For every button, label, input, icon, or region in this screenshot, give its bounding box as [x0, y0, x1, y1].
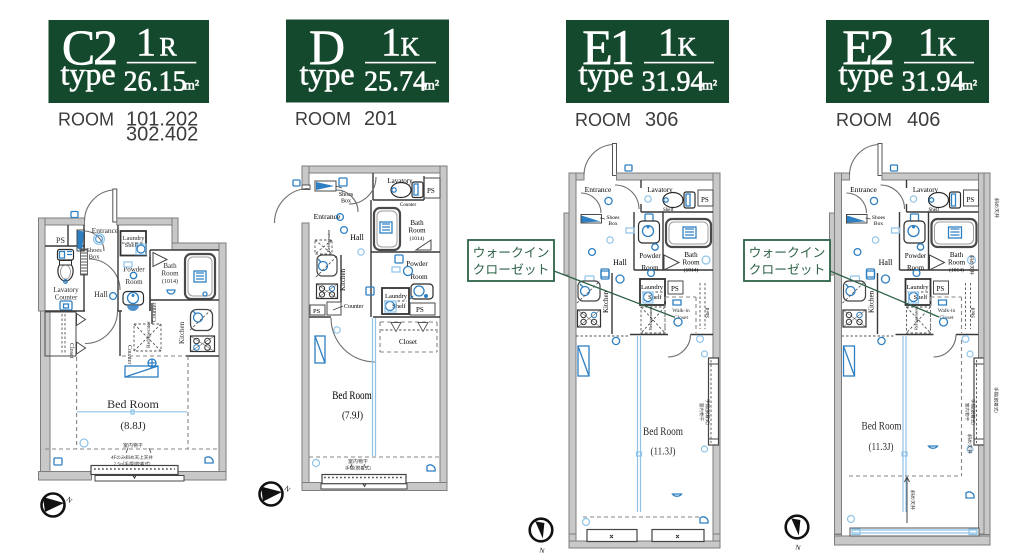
svg-text:Room: Room	[408, 227, 426, 235]
svg-text:(11.3J): (11.3J)	[651, 447, 676, 458]
svg-text:Closet: Closet	[399, 338, 417, 346]
svg-text:Hall: Hall	[94, 290, 109, 299]
svg-text:Box: Box	[608, 221, 617, 227]
svg-text:1: 1	[136, 20, 156, 65]
svg-text:PS: PS	[56, 236, 65, 245]
svg-text:Closet: Closet	[68, 343, 74, 359]
svg-text:306: 306	[645, 109, 678, 131]
svg-text:Shelf: Shelf	[663, 208, 674, 213]
svg-text:Kitchen: Kitchen	[178, 321, 186, 344]
svg-text:type: type	[838, 56, 893, 92]
svg-text:Shelf: Shelf	[648, 294, 663, 301]
svg-text:26.15: 26.15	[124, 67, 187, 98]
svg-text:PS: PS	[671, 285, 679, 293]
svg-text:Entrance: Entrance	[92, 226, 119, 235]
svg-text:Refrigerator: Refrigerator	[145, 321, 152, 348]
svg-text:Counter: Counter	[152, 303, 158, 322]
svg-text:Refrigerator: Refrigerator	[326, 230, 331, 252]
svg-text:Laundry: Laundry	[122, 235, 145, 242]
svg-text:(1014): (1014)	[162, 278, 178, 285]
svg-text:PS: PS	[427, 187, 435, 195]
svg-text:Bed Room: Bed Room	[643, 426, 683, 438]
svg-text:Counter: Counter	[126, 345, 132, 364]
svg-text:m²: m²	[702, 79, 717, 94]
svg-text:PS: PS	[313, 308, 321, 315]
svg-text:PS: PS	[701, 196, 709, 204]
svg-text:31.94: 31.94	[642, 67, 705, 98]
svg-text:m²: m²	[424, 79, 439, 94]
svg-text:Bed Room: Bed Room	[332, 390, 372, 402]
svg-text:(7.9J): (7.9J)	[342, 411, 363, 422]
svg-text:(1014): (1014)	[684, 267, 699, 274]
svg-text:Counter: Counter	[400, 203, 416, 208]
svg-text:(11.3J): (11.3J)	[869, 442, 894, 453]
svg-text:PS: PS	[416, 306, 424, 314]
svg-text:Room: Room	[682, 259, 700, 267]
svg-text:Shelf: Shelf	[706, 307, 711, 318]
svg-text:31.94: 31.94	[902, 67, 965, 98]
svg-text:K: K	[678, 33, 697, 62]
svg-text:Kitchen: Kitchen	[602, 290, 610, 313]
svg-text:302.402: 302.402	[126, 124, 198, 146]
svg-text:(1014): (1014)	[410, 235, 425, 242]
svg-text:type: type	[299, 56, 354, 92]
svg-text:m²: m²	[962, 79, 977, 94]
svg-text:Room: Room	[410, 273, 428, 281]
svg-text:Kitchen: Kitchen	[339, 268, 347, 291]
svg-text:Laundry: Laundry	[385, 293, 408, 300]
svg-text:Refrigerator: Refrigerator	[648, 308, 653, 330]
svg-text:ROOM: ROOM	[295, 109, 351, 129]
svg-text:Hall: Hall	[613, 258, 628, 267]
svg-text:K: K	[401, 33, 420, 62]
svg-text:201: 201	[364, 108, 397, 130]
svg-text:(8.8J): (8.8J)	[120, 420, 146, 432]
svg-text:K: K	[938, 33, 957, 62]
svg-text:25.74: 25.74	[364, 67, 427, 98]
svg-text:type: type	[60, 56, 115, 92]
svg-text:ROOM: ROOM	[836, 110, 892, 130]
svg-text:1: 1	[658, 20, 678, 65]
svg-text:R: R	[159, 33, 177, 62]
svg-text:Powder: Powder	[639, 252, 661, 260]
svg-text:Walk-in: Walk-in	[672, 308, 690, 314]
svg-text:type: type	[578, 56, 633, 92]
svg-text:Room: Room	[161, 270, 179, 278]
svg-text:ROOM: ROOM	[575, 110, 631, 130]
svg-text:Counter: Counter	[55, 294, 78, 302]
svg-text:Bed Room: Bed Room	[107, 397, 159, 411]
svg-text:m²: m²	[184, 79, 199, 94]
svg-text:Hall: Hall	[350, 233, 365, 242]
svg-text:Bed Room: Bed Room	[862, 421, 902, 433]
svg-text:Room: Room	[641, 264, 659, 272]
svg-text:1: 1	[918, 20, 938, 65]
svg-text:Counter: Counter	[344, 304, 363, 310]
svg-text:Entrance: Entrance	[585, 185, 612, 194]
svg-text:ROOM: ROOM	[58, 110, 114, 130]
svg-text:1: 1	[381, 20, 401, 65]
svg-text:406: 406	[907, 109, 940, 131]
svg-text:Laundry: Laundry	[641, 284, 664, 291]
